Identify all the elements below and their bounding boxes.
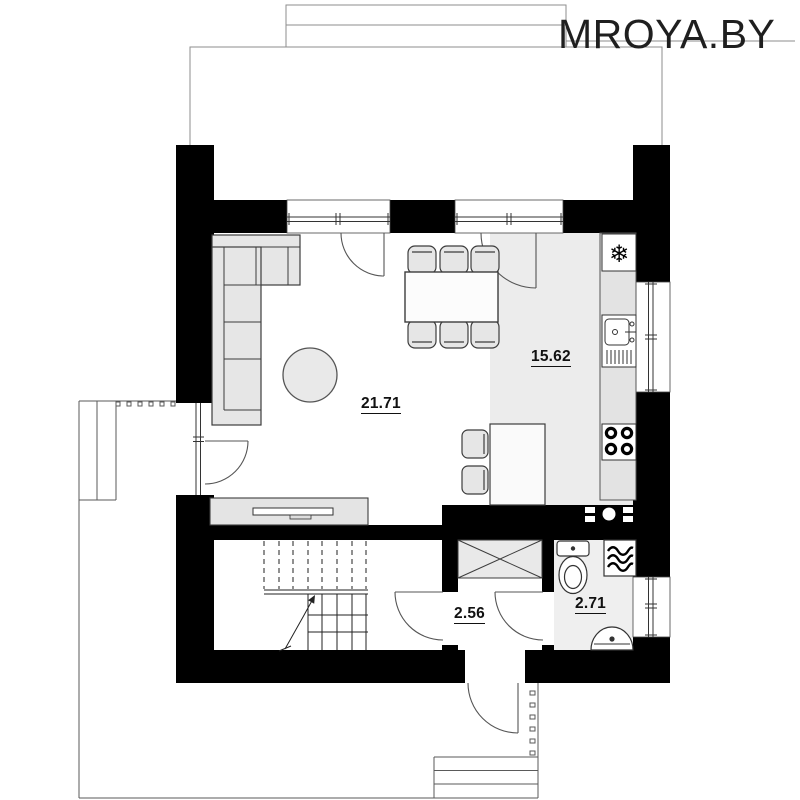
terrace-steps [79, 401, 116, 500]
chair [440, 320, 468, 348]
tv [253, 508, 333, 515]
wall-bottom-left [176, 650, 465, 683]
corner-sofa [212, 235, 300, 425]
window-top-left [287, 200, 390, 233]
watermark: MROYA.BY [558, 12, 775, 57]
bathroom-area-label: 2.71 [575, 596, 606, 614]
floor-plan-page: ❄ [0, 0, 800, 800]
chair [440, 246, 468, 274]
wall-bottom-right [525, 650, 670, 683]
stair-room-door-swing [395, 592, 443, 640]
chair [408, 246, 436, 274]
dining-table [405, 272, 498, 322]
chair [471, 320, 499, 348]
sink-drainer [607, 350, 631, 364]
window-top-right [455, 200, 563, 233]
stairs-lower-flight [308, 594, 368, 650]
tv-stand [210, 498, 368, 525]
kitchen-sink [602, 315, 636, 367]
window-right-kitchen [633, 282, 670, 392]
wall-right-middle [633, 392, 670, 577]
wall-top-1 [214, 200, 287, 233]
stairs-direction-arrow [279, 595, 315, 651]
wall-top-pier [390, 200, 455, 233]
tv-base [290, 515, 311, 519]
chair [471, 246, 499, 274]
hallway-area-label: 2.56 [454, 606, 485, 624]
bathroom-door-swing [495, 592, 543, 640]
porch-outline [434, 683, 538, 798]
wall-left-upper [176, 145, 214, 403]
staircase [264, 541, 368, 651]
toilet [557, 541, 589, 594]
wall-right-upper [633, 145, 670, 282]
wardrobe [458, 540, 542, 578]
chair [408, 320, 436, 348]
stairs-break-line [264, 590, 368, 594]
wall-tv [210, 525, 442, 540]
fridge: ❄ [602, 234, 636, 271]
wall-bath-pier [542, 540, 554, 592]
window-right-bathroom [633, 577, 670, 637]
roof-overhang-outline [190, 47, 662, 146]
terrace-door-unit [176, 403, 214, 495]
kitchen-area-label: 15.62 [531, 349, 571, 367]
living-window-door-swing [341, 233, 384, 276]
washing-machine [604, 540, 636, 576]
bar-stools [462, 430, 488, 494]
stove [602, 424, 636, 460]
wall-hall-left-pier [442, 540, 458, 592]
wall-bath-stub [542, 645, 554, 651]
terrace-hatch-ticks [116, 402, 175, 406]
porch-hatch-ticks [530, 691, 535, 755]
living-room-area-label: 21.71 [361, 396, 401, 414]
entrance-door-swing [468, 683, 518, 733]
coffee-table [283, 348, 337, 402]
kitchen-counter: ❄ [600, 233, 636, 500]
wall-top-2 [563, 200, 633, 233]
stairs-upper-flight-dashed [264, 541, 366, 589]
kitchen-island [462, 424, 545, 505]
wall-hall-left-stub [442, 645, 458, 651]
attic-outline [286, 5, 566, 47]
wall-kitchen-south [442, 505, 670, 540]
fridge-snowflake-icon: ❄ [609, 240, 629, 268]
entrance-steps [434, 757, 538, 798]
vent-circle [603, 508, 616, 521]
